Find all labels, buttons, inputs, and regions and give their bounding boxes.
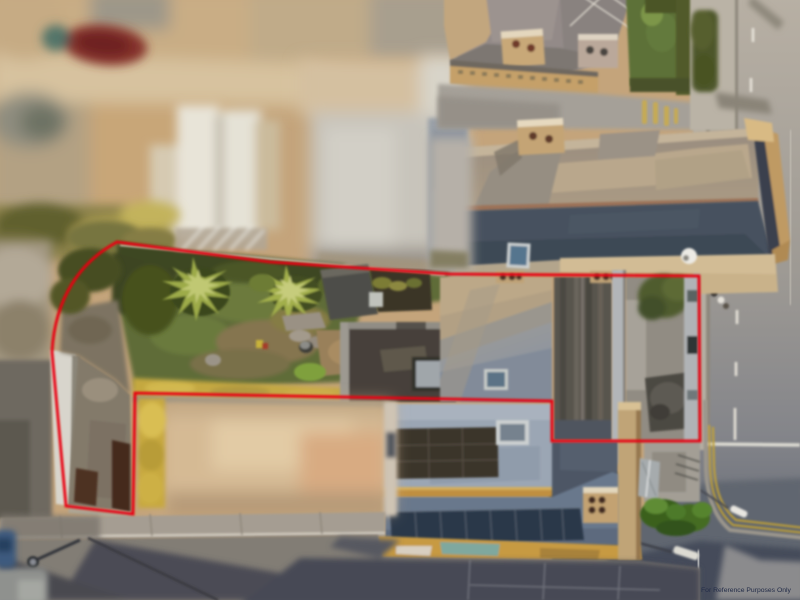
- svg-text:For Reference Purposes Only: For Reference Purposes Only: [701, 587, 792, 594]
